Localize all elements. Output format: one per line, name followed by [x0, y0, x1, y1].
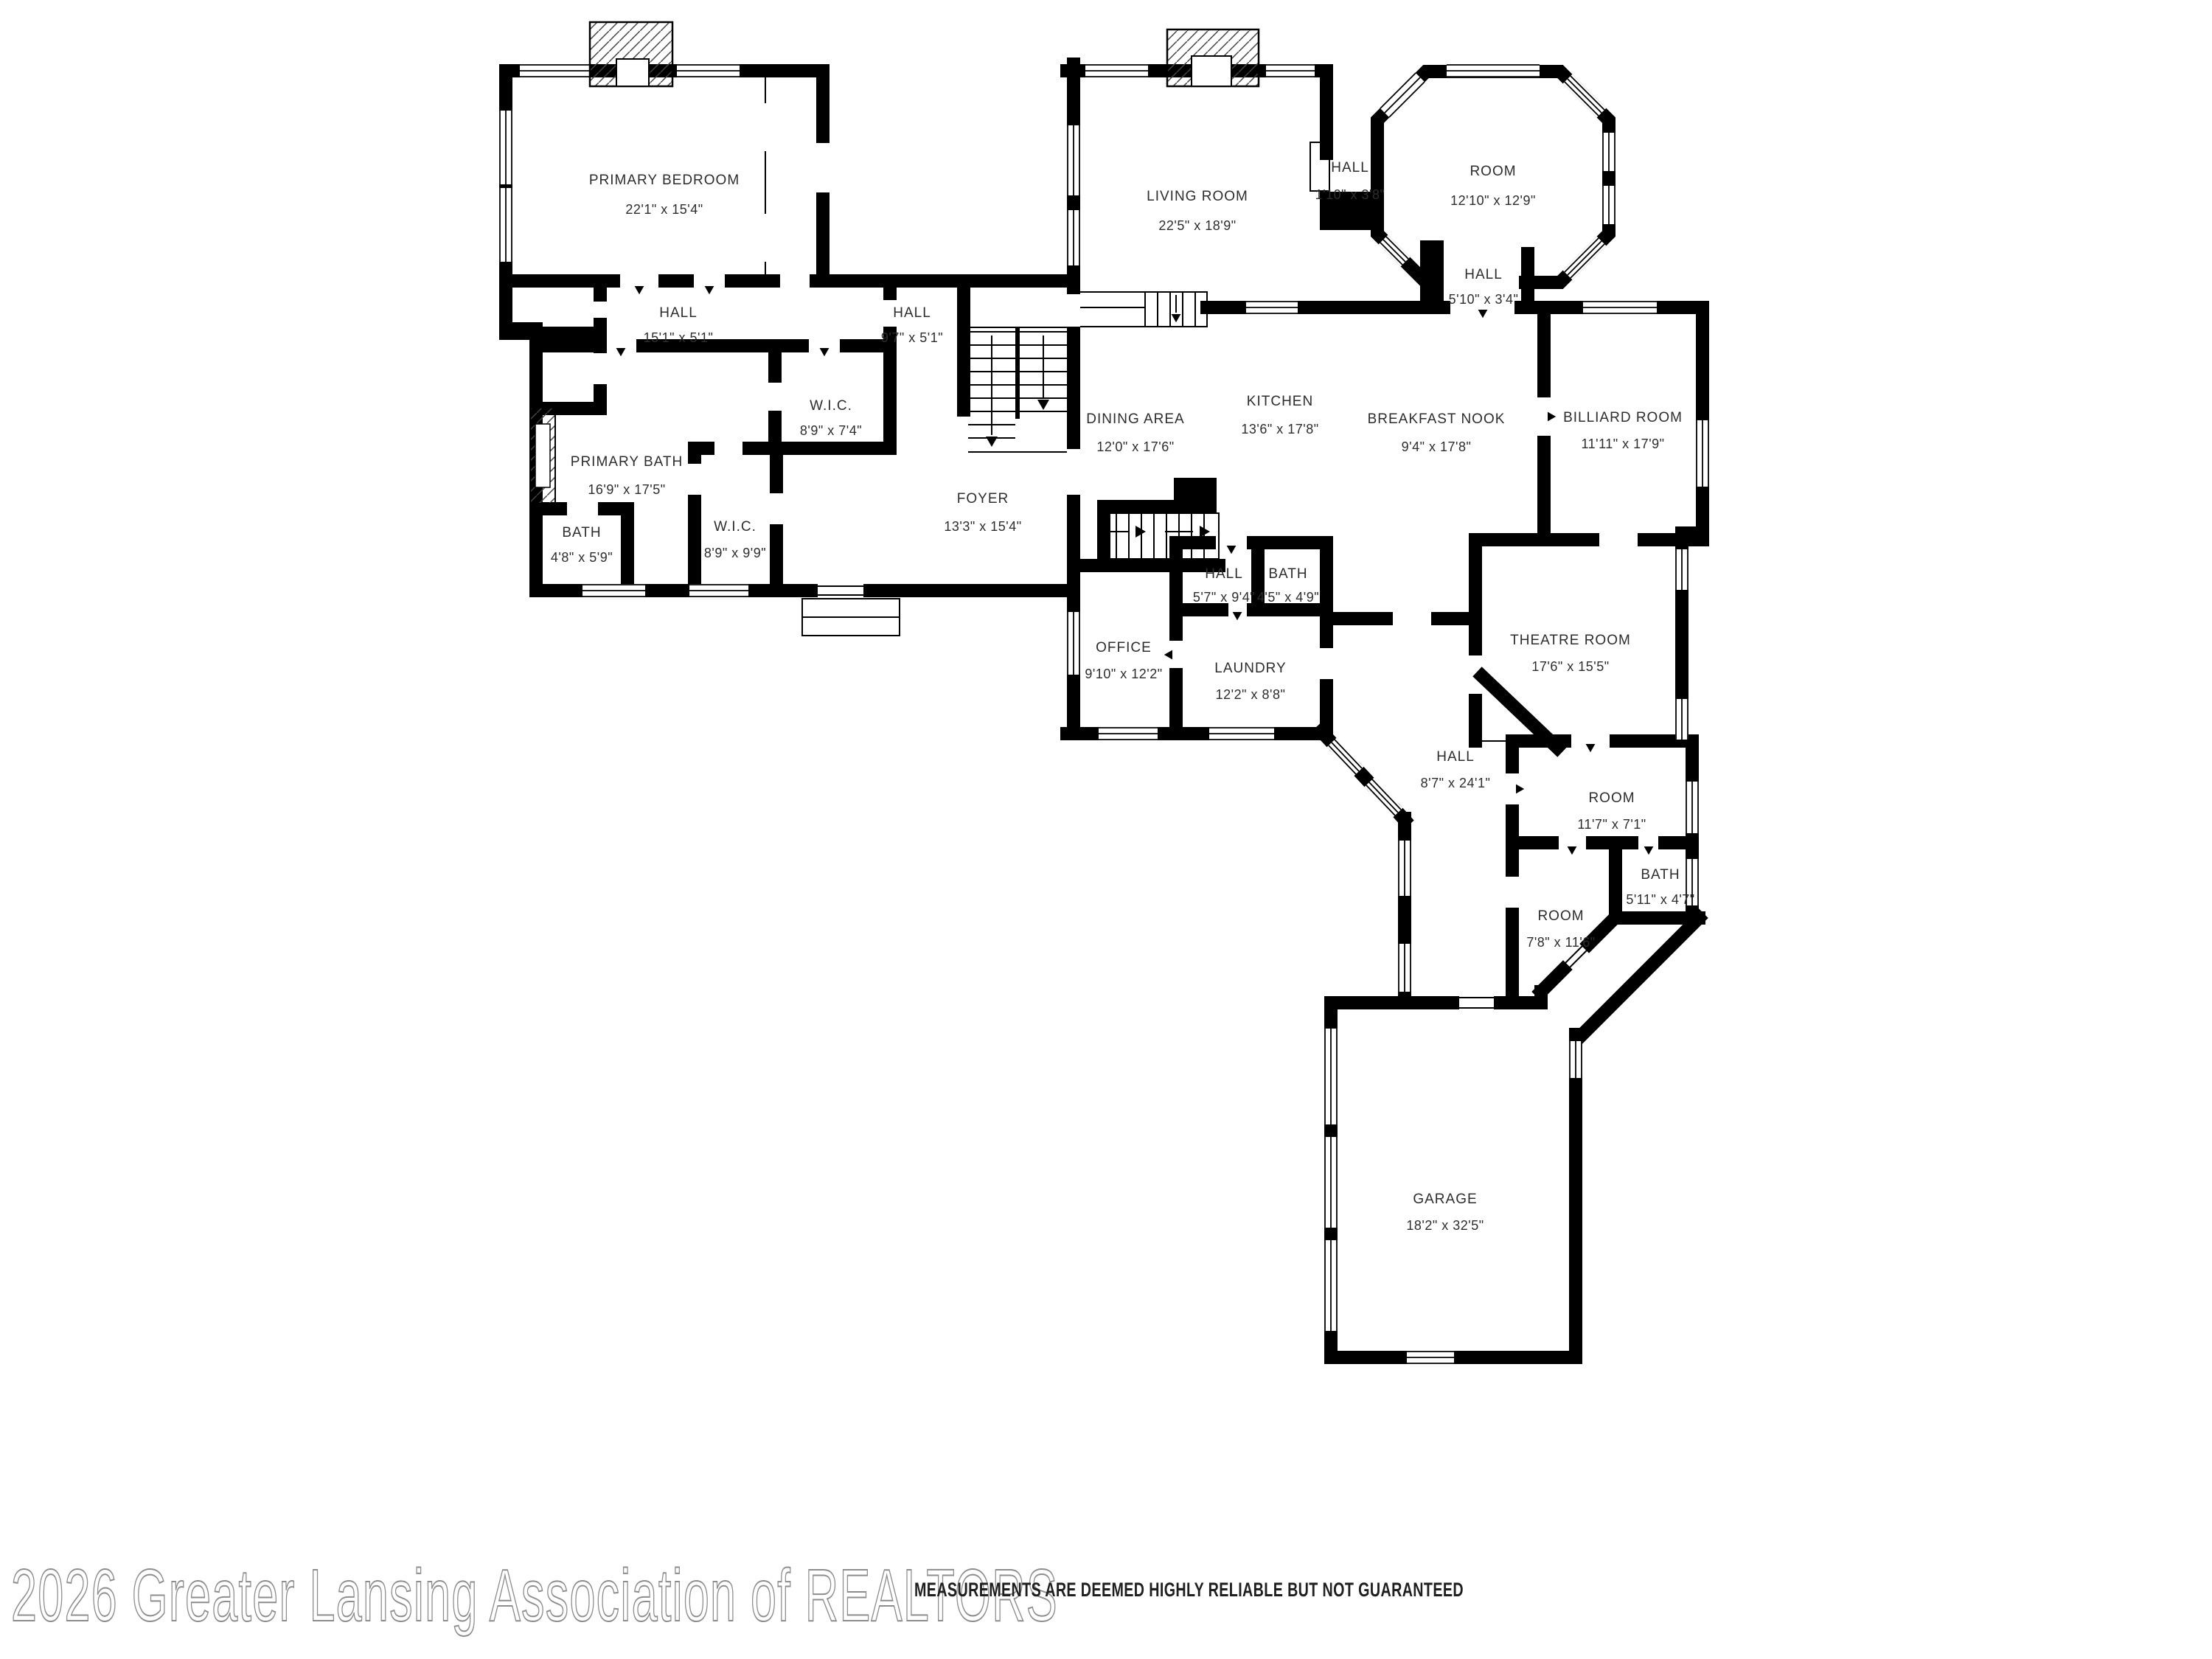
window: [689, 585, 748, 597]
room-dims: 8'9" x 9'9": [704, 546, 766, 560]
watermark-text: 2026 Greater Lansing Association of REAL…: [11, 1554, 1058, 1637]
room-dims: 22'5" x 18'9": [1158, 218, 1236, 233]
room-label: HALL: [659, 305, 698, 321]
window: [1246, 302, 1298, 313]
room-dims: 8'9" x 7'4": [800, 423, 862, 438]
fireplace-icon: [590, 22, 672, 86]
footer: 2026 Greater Lansing Association of REAL…: [11, 1554, 1464, 1637]
room-label: DINING AREA: [1086, 411, 1184, 427]
room-dims: 11'7" x 7'1": [1577, 817, 1646, 832]
window: [1099, 728, 1158, 740]
room-label: ROOM: [1470, 164, 1516, 179]
room-label: BILLIARD ROOM: [1563, 410, 1683, 425]
window: [1603, 186, 1615, 224]
shower-icon: [530, 408, 555, 504]
window: [1068, 125, 1079, 195]
window: [1676, 699, 1688, 740]
room-dims: 15'1" x 5'1": [644, 330, 714, 345]
room-dims: 5'7" x 9'4": [1193, 590, 1255, 605]
room-dims: 4'5" x 4'9": [1257, 590, 1319, 605]
window: [1686, 782, 1698, 833]
room-label: HALL: [1205, 566, 1243, 582]
window: [1325, 1240, 1337, 1331]
wall-chunk: [1420, 240, 1444, 307]
floor-plan-page: PRIMARY BEDROOM 22'1" x 15'4" LIVING ROO…: [0, 0, 2212, 1659]
room-label: LAUNDRY: [1214, 661, 1286, 676]
window: [1447, 65, 1540, 77]
fireplace-icon: [1167, 29, 1259, 86]
wall-chunk: [1174, 478, 1217, 513]
room-label: LIVING ROOM: [1147, 189, 1248, 204]
room-label: HALL: [893, 305, 931, 321]
room-dims: 5'10" x 3'4": [1449, 292, 1519, 307]
room-dims: 13'6" x 17'8": [1241, 422, 1318, 437]
room-label: ROOM: [1537, 908, 1584, 924]
room-label: BATH: [1641, 867, 1680, 883]
window: [677, 65, 740, 77]
room-label: OFFICE: [1096, 640, 1152, 655]
basement-staircase: [1104, 513, 1219, 559]
window: [500, 188, 512, 262]
window: [1399, 944, 1411, 992]
disclaimer-text: MEASUREMENTS ARE DEEMED HIGHLY RELIABLE …: [914, 1579, 1464, 1601]
window: [520, 65, 590, 77]
room-dims: 12'0" x 17'6": [1096, 439, 1174, 454]
room-label: PRIMARY BATH: [571, 454, 683, 470]
living-room-step: [1080, 292, 1207, 327]
room-dims: 12'2" x 8'8": [1216, 687, 1286, 702]
room-label: FOYER: [957, 491, 1009, 507]
room-label: W.I.C.: [810, 398, 852, 414]
room-dims: 8'7" x 24'1": [1421, 776, 1491, 790]
garage-door-line: [1453, 998, 1500, 1008]
room-labels: PRIMARY BEDROOM 22'1" x 15'4" LIVING ROO…: [551, 160, 1695, 1233]
window: [1068, 612, 1079, 675]
room-dims: 9'4" x 17'8": [1402, 439, 1472, 454]
window: [1583, 302, 1657, 313]
window: [1325, 1029, 1337, 1124]
window: [1325, 1137, 1337, 1228]
room-label: ROOM: [1588, 790, 1635, 806]
window: [1329, 740, 1362, 774]
room-dims: 1'10" x 3'8": [1315, 187, 1385, 202]
walls: [506, 64, 1709, 1357]
window: [1407, 1352, 1454, 1363]
room-label: PRIMARY BEDROOM: [589, 173, 740, 188]
room-label: KITCHEN: [1247, 394, 1313, 409]
room-dims: 17'6" x 15'5": [1531, 659, 1609, 674]
wall-chunk: [1675, 526, 1709, 546]
room-dims: 13'3" x 15'4": [944, 519, 1021, 534]
window: [500, 111, 512, 184]
window: [1399, 841, 1411, 896]
room-dims: 16'9" x 17'5": [588, 482, 665, 497]
window: [1676, 549, 1688, 590]
room-dims: 18'2" x 32'5": [1406, 1218, 1484, 1233]
room-label: BATH: [1268, 566, 1307, 582]
room-dims: 9'7" x 5'1": [881, 330, 943, 345]
room-dims: 4'8" x 5'9": [551, 550, 613, 565]
room-dims: 11'11" x 17'9": [1581, 437, 1664, 451]
floor-plan-drawing: PRIMARY BEDROOM 22'1" x 15'4" LIVING ROO…: [0, 0, 2212, 1659]
room-dims: 9'10" x 12'2": [1085, 667, 1162, 681]
window: [1570, 1041, 1582, 1078]
room-dims: 7'8" x 11'6": [1526, 935, 1595, 950]
room-label: HALL: [1436, 749, 1475, 765]
room-dims: 22'1" x 15'4": [625, 202, 703, 217]
foyer-staircase: [968, 327, 1067, 452]
room-label: HALL: [1331, 160, 1369, 175]
room-label: BATH: [562, 525, 601, 540]
window: [1266, 65, 1315, 77]
room-dims: 5'11" x 4'7": [1626, 892, 1694, 907]
window: [1068, 210, 1079, 265]
room-label: GARAGE: [1413, 1192, 1477, 1207]
window: [582, 585, 645, 597]
room-label: THEATRE ROOM: [1510, 633, 1631, 648]
window: [1085, 65, 1148, 77]
room-dims: 12'10" x 12'9": [1450, 193, 1536, 208]
room-label: W.I.C.: [714, 519, 757, 535]
room-label: BREAKFAST NOOK: [1368, 411, 1506, 427]
window: [1697, 420, 1708, 487]
window: [1603, 133, 1615, 171]
window: [1209, 728, 1274, 740]
window: [1366, 779, 1401, 815]
room-label: HALL: [1464, 267, 1503, 282]
